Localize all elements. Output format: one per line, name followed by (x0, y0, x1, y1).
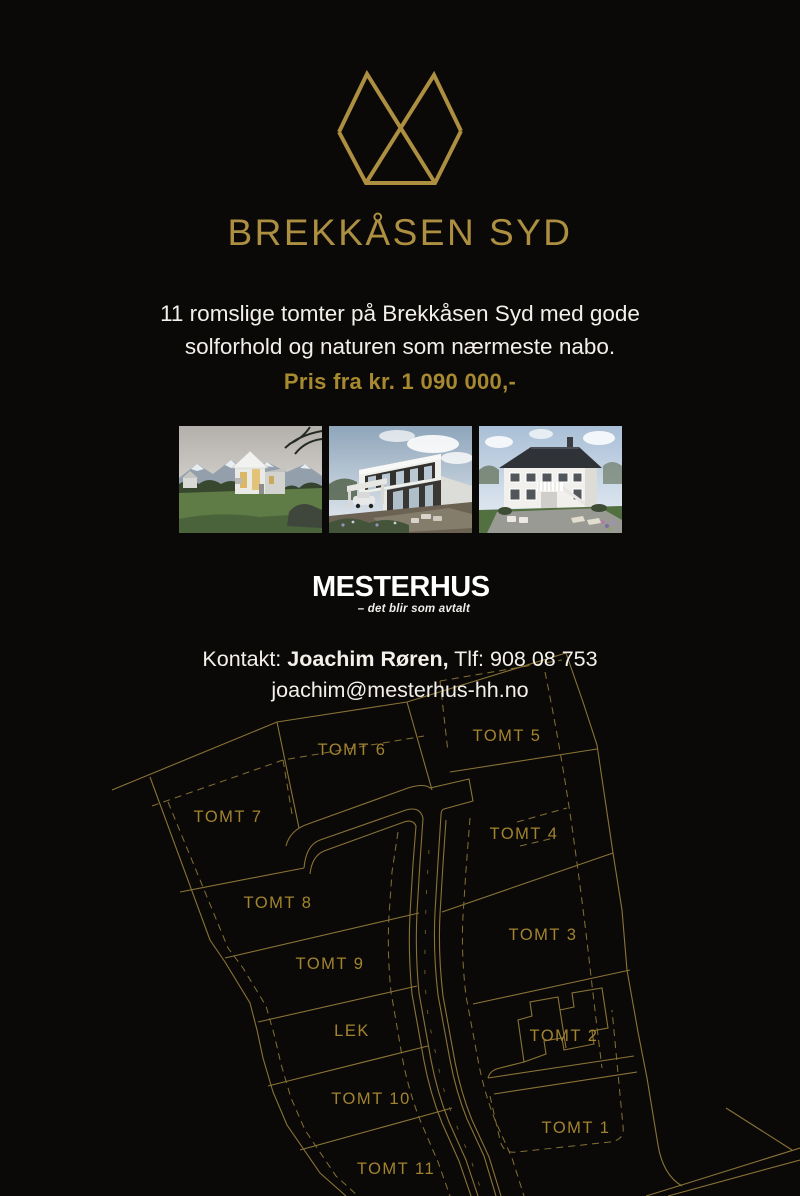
plot-label-tomt-7: TOMT 7 (194, 808, 263, 826)
builder-logo: MESTERHUS – det blir som avtalt (312, 573, 470, 615)
brochure-page: BREKKÅSEN SYD 11 romslige tomter på Brek… (0, 0, 800, 1196)
contact-block: Kontakt: Joachim Røren, Tlf: 908 08 753 … (0, 644, 800, 706)
twin-peaks-diamond-icon (333, 66, 467, 190)
price-text: Pris fra kr. 1 090 000,- (0, 369, 800, 395)
intro-line-2: solforhold og naturen som nærmeste nabo. (0, 330, 800, 363)
intro-line-1: 11 romslige tomter på Brekkåsen Syd med … (0, 297, 800, 330)
builder-wordmark: MESTERHUS (312, 573, 470, 601)
contact-email[interactable]: joachim@mesterhus-hh.no (0, 675, 800, 706)
plot-label-tomt-2: TOMT 2 (530, 1027, 599, 1045)
site-plan-map: TOMT 6TOMT 5TOMT 7TOMT 4TOMT 8TOMT 3TOMT… (0, 640, 800, 1196)
photo-row (179, 426, 622, 533)
plot-label-tomt-8: TOMT 8 (244, 894, 313, 912)
contact-line: Kontakt: Joachim Røren, Tlf: 908 08 753 (0, 644, 800, 675)
plot-label-tomt-3: TOMT 3 (509, 926, 578, 944)
plot-label-tomt-1: TOMT 1 (542, 1119, 611, 1137)
page-title: BREKKÅSEN SYD (0, 212, 800, 254)
classic-white-two-storey-house-photo (479, 426, 622, 533)
builder-tagline: – det blir som avtalt (312, 603, 470, 615)
plot-label-tomt-4: TOMT 4 (490, 825, 559, 843)
contact-phone: Tlf: 908 08 753 (454, 647, 597, 671)
plot-label-tomt-5: TOMT 5 (473, 727, 542, 745)
contact-name: Joachim Røren, (287, 647, 448, 671)
plot-label-tomt-11: TOMT 11 (357, 1160, 435, 1178)
modern-flat-roof-house-with-carport-photo (329, 426, 472, 533)
plot-label-tomt-6: TOMT 6 (318, 741, 387, 759)
intro-text: 11 romslige tomter på Brekkåsen Syd med … (0, 297, 800, 363)
site-boundary-lines (112, 653, 792, 1196)
plot-label-tomt-10: TOMT 10 (331, 1090, 411, 1108)
plot-label-tomt-9: TOMT 9 (296, 955, 365, 973)
contact-label: Kontakt: (202, 647, 281, 671)
modern-gable-house-with-mountains-photo (179, 426, 322, 533)
plot-label-lek: LEK (334, 1022, 370, 1040)
